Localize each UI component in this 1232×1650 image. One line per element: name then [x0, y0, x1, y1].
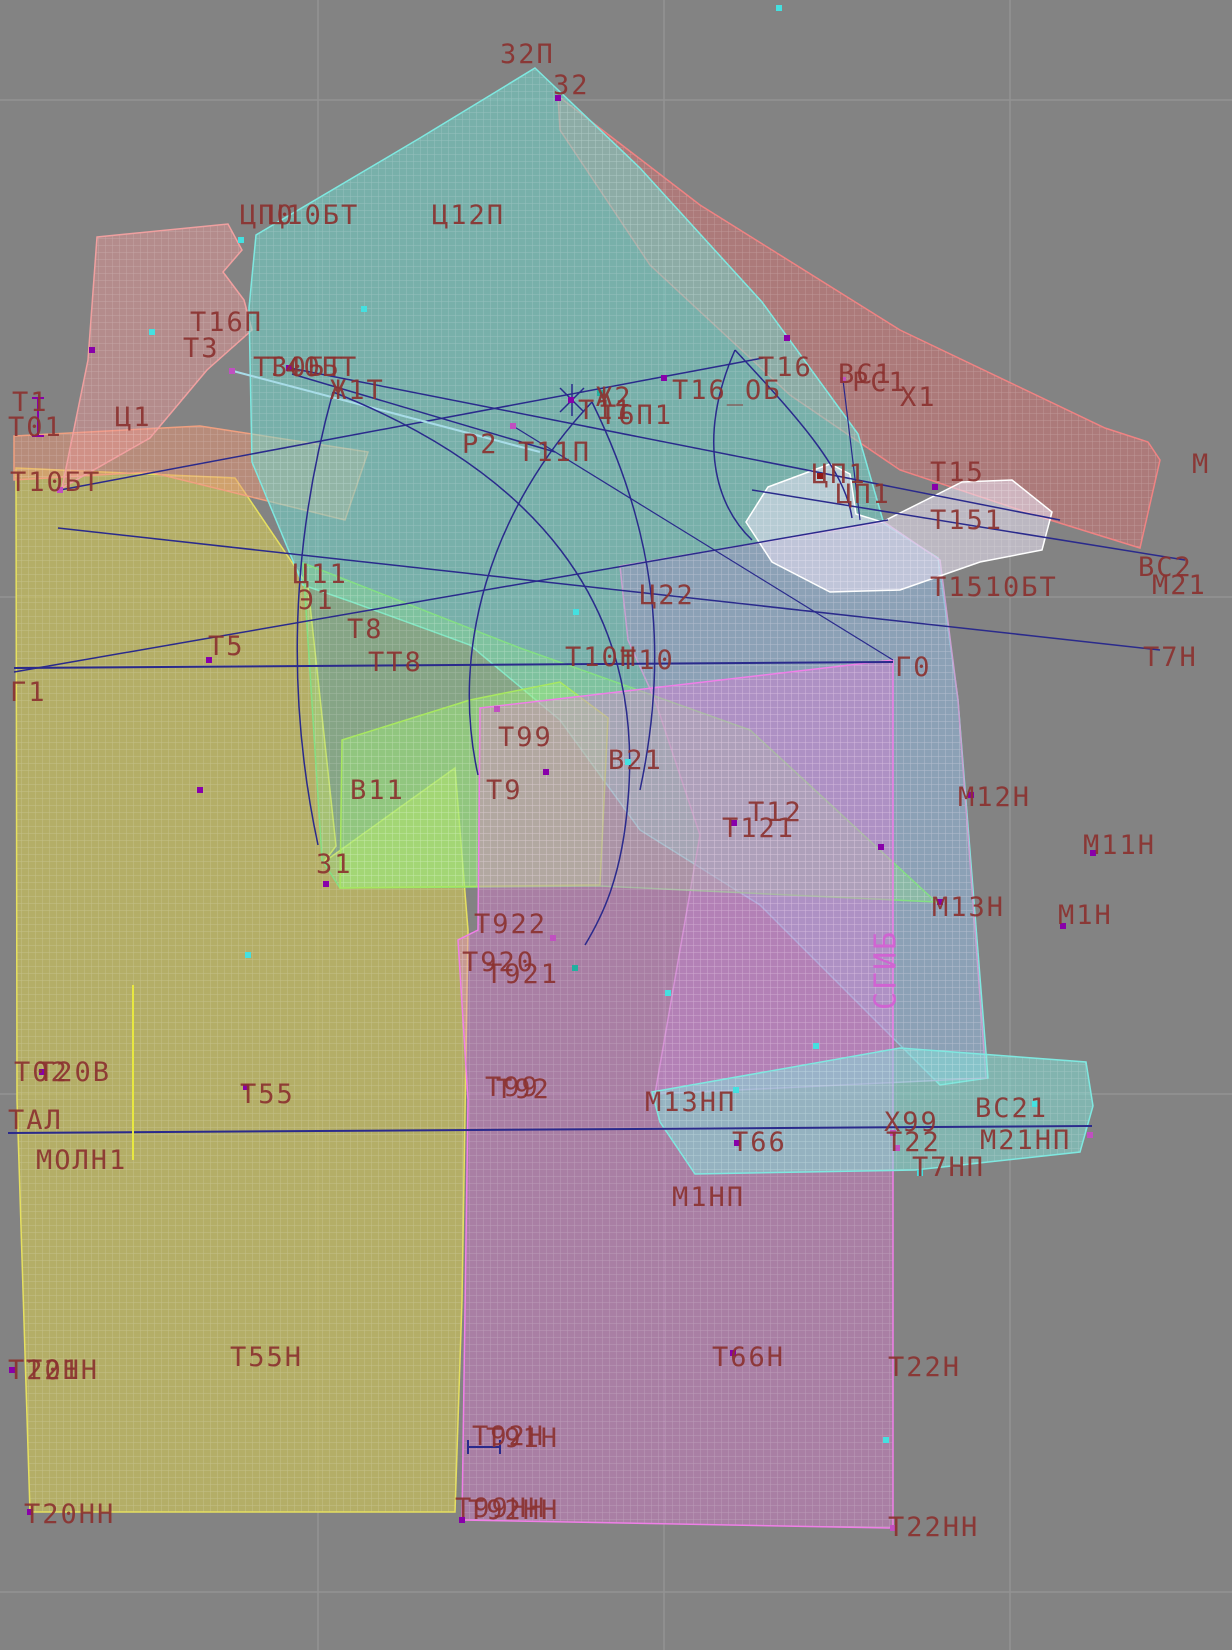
point-label: Т92	[496, 1074, 551, 1105]
point-label: Т10	[620, 645, 675, 676]
pattern-canvas[interactable]: 32П32ЦП0Ц10БТЦ12ПТ16ПТ3Т30БТТ40БТЖ1ТТ1Т0…	[0, 0, 1232, 1650]
point-label: Т20НН	[24, 1499, 115, 1530]
point-label: Ц22	[640, 580, 695, 611]
point-label: Г0	[895, 652, 932, 683]
point-marker[interactable]	[573, 609, 579, 615]
point-marker[interactable]	[550, 935, 556, 941]
pattern-layers: 32П32ЦП0Ц10БТЦ12ПТ16ПТ3Т30БТТ40БТЖ1ТТ1Т0…	[0, 0, 1232, 1650]
point-marker[interactable]	[784, 335, 790, 341]
point-marker[interactable]	[510, 423, 516, 429]
point-marker[interactable]	[245, 952, 251, 958]
point-label: Т5	[208, 631, 245, 662]
point-marker[interactable]	[149, 329, 155, 335]
point-marker[interactable]	[665, 990, 671, 996]
point-label: Т921	[486, 959, 559, 990]
point-label: В11	[350, 775, 405, 806]
point-marker[interactable]	[229, 368, 235, 374]
point-marker[interactable]	[572, 965, 578, 971]
point-label: ЦП1	[836, 479, 891, 510]
point-label: Т22НН	[888, 1512, 979, 1543]
point-label: 32П	[500, 39, 555, 70]
point-label: М21НП	[980, 1125, 1071, 1156]
point-marker[interactable]	[813, 1043, 819, 1049]
point-label: М1НП	[672, 1182, 745, 1213]
point-label: М1Н	[1058, 900, 1113, 931]
point-marker[interactable]	[323, 881, 329, 887]
point-label: Т7Н	[1143, 642, 1198, 673]
point-marker[interactable]	[878, 844, 884, 850]
point-label: Т10БТ	[10, 467, 101, 498]
point-marker[interactable]	[197, 787, 203, 793]
point-label: Г1	[10, 677, 47, 708]
point-label: Т1510БТ	[930, 572, 1058, 603]
point-label: Т91Н	[486, 1423, 559, 1454]
point-label: В21	[608, 745, 663, 776]
point-label: Х1	[900, 382, 937, 413]
point-marker[interactable]	[238, 237, 244, 243]
point-marker[interactable]	[89, 347, 95, 353]
point-label: Т22Н	[888, 1352, 961, 1383]
point-marker[interactable]	[883, 1437, 889, 1443]
point-label: СГИБ	[868, 930, 903, 1010]
point-label: Т01	[8, 412, 63, 443]
point-label: М	[1192, 449, 1210, 480]
point-label: Т16_ОБ	[672, 375, 782, 406]
point-label: Ц12П	[432, 200, 505, 231]
point-label: М21	[1152, 570, 1207, 601]
point-label: Т15	[930, 457, 985, 488]
point-label: Т21Н	[26, 1355, 99, 1386]
point-label: ВС21	[975, 1093, 1048, 1124]
point-label: Т6П1	[600, 400, 673, 431]
point-label: Т8	[347, 614, 384, 645]
point-label: Т66Н	[712, 1342, 785, 1373]
point-label: МОЛН1	[36, 1145, 127, 1176]
point-label: Э1	[298, 585, 335, 616]
point-label: М12Н	[958, 782, 1031, 813]
point-label: Т92НН	[468, 1495, 559, 1526]
point-marker[interactable]	[494, 706, 500, 712]
point-label: ТАЛ	[8, 1105, 63, 1136]
point-label: Ц1	[115, 402, 152, 433]
point-label: Р2	[462, 429, 499, 460]
point-label: Т55	[240, 1079, 295, 1110]
point-label: Т3	[183, 333, 220, 364]
point-label: Т9	[486, 775, 523, 806]
point-label: Т66	[732, 1127, 787, 1158]
point-marker[interactable]	[361, 306, 367, 312]
point-label: Т55Н	[230, 1342, 303, 1373]
point-marker[interactable]	[543, 769, 549, 775]
point-label: Т20В	[38, 1057, 111, 1088]
point-label: Т99	[498, 722, 553, 753]
point-label: М13НП	[645, 1087, 736, 1118]
point-label: Т151	[930, 505, 1003, 536]
point-label: М11Н	[1083, 830, 1156, 861]
point-label: Т922	[474, 909, 547, 940]
point-label: М13Н	[932, 892, 1005, 923]
point-marker[interactable]	[661, 375, 667, 381]
point-label: ТТ8	[368, 647, 423, 678]
point-label: Т11П	[518, 437, 591, 468]
point-label: Ц10БТ	[268, 200, 359, 231]
point-marker[interactable]	[568, 397, 574, 403]
point-label: 32	[553, 70, 590, 101]
point-marker[interactable]	[776, 5, 782, 11]
point-marker[interactable]	[1087, 1132, 1093, 1138]
point-label: РС1	[852, 367, 907, 398]
point-label: Т7НП	[912, 1152, 985, 1183]
point-label: Ж1Т	[330, 375, 385, 406]
app-canvas: 32П32ЦП0Ц10БТЦ12ПТ16ПТ3Т30БТТ40БТЖ1ТТ1Т0…	[0, 0, 1232, 1650]
point-label: Т121	[722, 813, 795, 844]
point-label: З1	[316, 849, 353, 880]
